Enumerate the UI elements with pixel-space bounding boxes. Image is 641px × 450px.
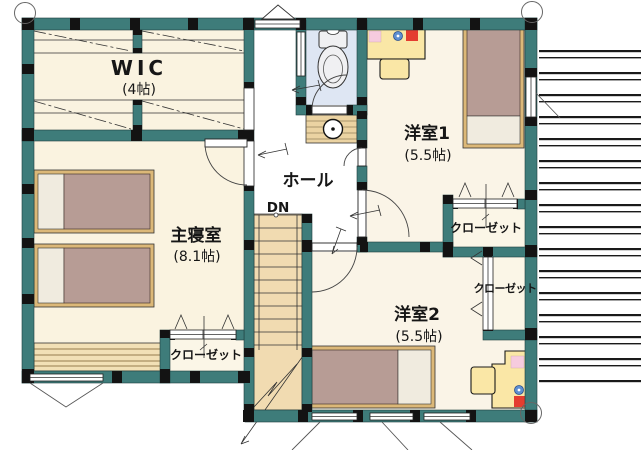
desk-pink-item xyxy=(369,31,381,42)
west2-size-label: (5.5帖) xyxy=(395,329,442,345)
wall-west2-top xyxy=(357,242,453,252)
hall-label: ホール xyxy=(283,171,334,191)
master-bed-1 xyxy=(34,170,154,233)
west2-chair xyxy=(471,367,495,394)
wic-name-label: WIC xyxy=(111,56,167,80)
stairs-dn-label: DN xyxy=(267,200,290,216)
master-bed-2 xyxy=(34,244,154,307)
west1-chair xyxy=(380,59,409,79)
west2-bed xyxy=(308,346,435,408)
desk-pink-item xyxy=(511,356,524,368)
west2-south-windows xyxy=(312,413,470,420)
floor-plan-canvas: WIC (4帖) 主寝室 (8.1帖) ホール DN 洋室1 (5.5帖) 洋室… xyxy=(0,0,641,450)
closet1-folding-door xyxy=(453,199,517,208)
master-closet-folding-door xyxy=(170,330,236,339)
washbasin-icon xyxy=(306,115,357,143)
west1-size-label: (5.5帖) xyxy=(404,148,451,164)
closet2-label: クローゼット xyxy=(474,281,537,295)
toilet-door-leaf xyxy=(312,106,347,114)
master-doorway xyxy=(244,141,254,186)
toilet-icon xyxy=(318,28,348,89)
balcony-roof xyxy=(539,50,641,386)
floor-plan-2f: WIC (4帖) 主寝室 (8.1帖) ホール DN 洋室1 (5.5帖) 洋室… xyxy=(0,0,641,450)
master-south-window xyxy=(30,374,103,381)
master-closet-label: クローゼット xyxy=(170,347,242,362)
master-door-leaf xyxy=(205,139,247,147)
wic-doorway xyxy=(244,88,254,130)
toilet-window xyxy=(297,32,305,76)
west2-name-label: 洋室2 xyxy=(394,304,440,325)
closet1-label: クローゼット xyxy=(450,220,522,235)
window-bench xyxy=(34,343,163,371)
wic-size-label: (4帖) xyxy=(122,82,156,98)
desk-red-item xyxy=(406,30,418,41)
west1-east-window xyxy=(526,77,536,117)
west1-bed xyxy=(463,24,524,148)
master-size-label: (8.1帖) xyxy=(173,249,220,265)
hall-storage-door-leaf xyxy=(358,148,366,166)
master-name-label: 主寝室 xyxy=(171,225,222,246)
west1-name-label: 洋室1 xyxy=(404,123,450,144)
